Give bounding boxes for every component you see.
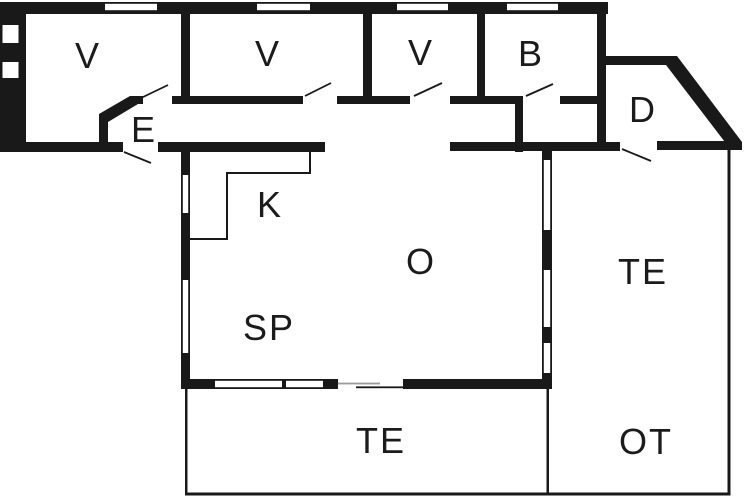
room-label-v1: V (75, 35, 101, 76)
door-swing-lines (124, 83, 651, 388)
door-v1 (141, 85, 168, 98)
walls (0, 2, 742, 389)
terrace-door-line-outer (338, 383, 380, 385)
room-label-e: E (131, 109, 157, 150)
room-label-b: B (518, 33, 544, 74)
door-entry (124, 152, 151, 163)
room-label-sp: SP (243, 307, 295, 348)
room-label-te-bottom: TE (356, 420, 406, 461)
terrace-door-line-inner (356, 386, 403, 388)
door-v3 (414, 83, 442, 96)
room-label-o: O (406, 241, 436, 282)
room-label-v3: V (408, 32, 434, 73)
room-label-ot: OT (619, 421, 673, 462)
room-label-te-right: TE (618, 251, 668, 292)
door-b (526, 84, 553, 96)
floor-plan-canvas: V V V B D E K O SP TE TE OT (0, 0, 750, 500)
slanted-corner-wall (666, 56, 742, 150)
door-v2 (305, 83, 331, 96)
kitchen-outline (190, 152, 311, 240)
room-label-k: K (257, 184, 283, 225)
room-label-d: D (629, 89, 657, 130)
room-label-v2: V (255, 33, 281, 74)
floor-plan-image: V V V B D E K O SP TE TE OT (0, 0, 750, 500)
door-d (622, 149, 651, 161)
